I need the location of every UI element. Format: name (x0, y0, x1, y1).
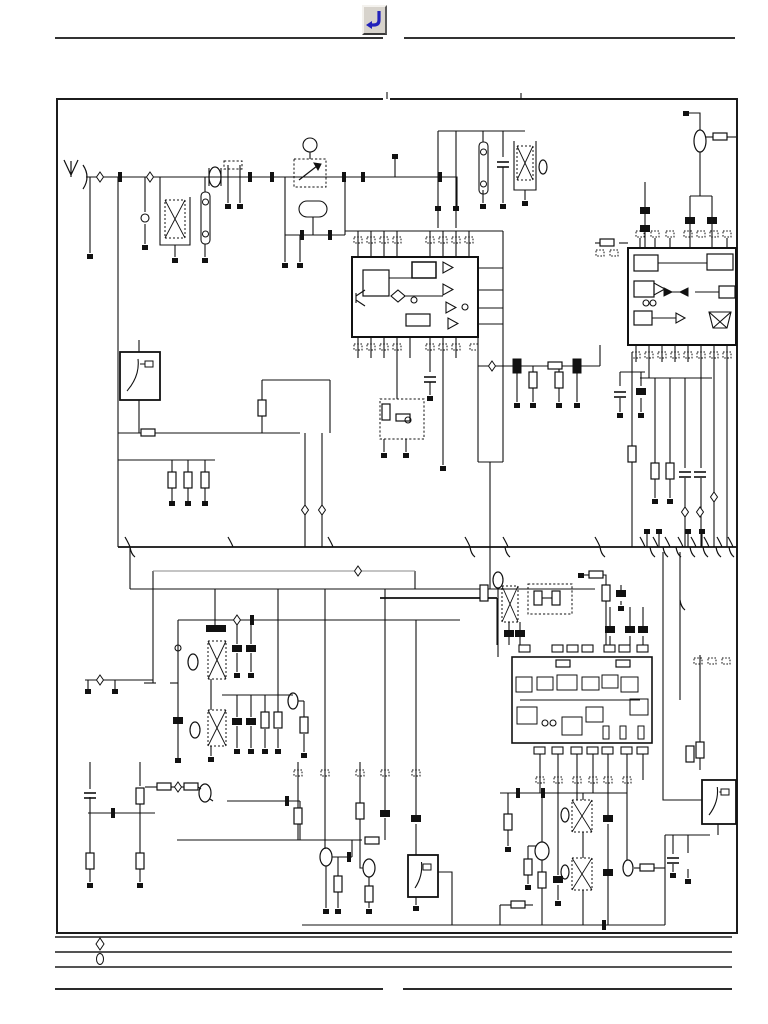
tube-dot (481, 181, 487, 187)
ic-pin-pad (582, 645, 593, 652)
transformer-coil (190, 722, 200, 738)
crossover-hook (465, 537, 470, 547)
capacitor-bold (216, 625, 226, 632)
ground (392, 154, 398, 159)
capacitor-bold (640, 225, 650, 232)
ic-pin-pad (552, 645, 563, 652)
resistor (258, 400, 266, 416)
ic-pin-pad (621, 747, 632, 754)
ic-pin-pad (619, 645, 630, 652)
resistor (334, 876, 342, 892)
circle-symbol (411, 297, 417, 303)
ic-block (363, 270, 389, 296)
jack-box (120, 352, 160, 400)
junction (541, 788, 545, 798)
resistor (696, 742, 704, 758)
ground (403, 453, 409, 458)
junction (342, 172, 346, 182)
footer-diamond-marker (96, 938, 104, 950)
junction (111, 808, 115, 818)
crossover-hook (470, 547, 475, 557)
ground (453, 206, 459, 211)
transformer-coil (561, 865, 569, 879)
resistor-h (600, 239, 614, 246)
resistor (184, 472, 192, 488)
resistor (686, 746, 694, 762)
resistor-h (640, 864, 654, 871)
ground (505, 847, 511, 852)
ground (301, 753, 307, 758)
ic-pin-pad (567, 645, 578, 652)
diamond-marker (697, 507, 704, 517)
ic-block (552, 591, 560, 605)
circle-symbol (303, 138, 317, 152)
transformer-coil (694, 130, 706, 152)
tube-dot (203, 199, 209, 205)
ground (366, 909, 372, 914)
circle-symbol (462, 304, 468, 310)
resistor (356, 803, 364, 819)
capacitor-bold (707, 217, 717, 224)
resistor (261, 712, 269, 728)
capacitor-bold (636, 388, 646, 395)
transformer-coil (623, 860, 633, 876)
amp-triangle (443, 284, 453, 295)
pin-label-mark (697, 231, 705, 237)
ground (172, 258, 178, 263)
ground (514, 403, 520, 408)
resistor (555, 372, 563, 388)
ground (248, 673, 254, 678)
pin-label-mark (666, 231, 674, 237)
ground (435, 206, 441, 211)
ground (208, 757, 214, 762)
capacitor-bold (625, 626, 635, 633)
resistor-h (556, 660, 570, 667)
ground (617, 413, 623, 418)
amp-triangle (676, 313, 685, 323)
resistor (136, 788, 144, 804)
ic-pin-pad (602, 747, 613, 754)
ic-block (634, 255, 658, 271)
diamond-marker (97, 172, 104, 182)
crossover-hook (328, 537, 333, 547)
ground (427, 396, 433, 401)
junction (285, 796, 289, 806)
diamond-marker (711, 492, 718, 502)
ground (142, 245, 148, 250)
resistor-h (616, 660, 630, 667)
ground (685, 529, 691, 534)
diamond-marker (97, 675, 104, 685)
crossover-hook (678, 537, 683, 547)
resistor (504, 814, 512, 830)
ground (440, 466, 446, 471)
pin-label-mark (684, 231, 692, 237)
resistor-h (589, 571, 603, 578)
resistor (86, 853, 94, 869)
dashed-box (224, 161, 242, 169)
ground (644, 529, 650, 534)
capacitor-bold (232, 645, 242, 652)
ic-pin-pad (552, 747, 563, 754)
ground (656, 529, 662, 534)
ic-block (557, 675, 577, 690)
ground (652, 499, 658, 504)
pin-label-mark (596, 250, 604, 256)
resistor (480, 585, 488, 601)
diamond-marker (234, 615, 241, 625)
junction (118, 172, 122, 182)
ic-block (582, 677, 599, 690)
ground (169, 501, 175, 506)
transformer-coil (363, 859, 375, 877)
ic-block (719, 286, 735, 298)
capacitor-bold (515, 630, 525, 637)
resistor-h (365, 837, 379, 844)
ground (525, 885, 531, 890)
ground (202, 501, 208, 506)
capacitor-bold (504, 630, 514, 637)
symbol-path (391, 290, 405, 302)
ic-block (586, 707, 603, 722)
diamond-marker (489, 361, 496, 371)
resistor-h (157, 783, 171, 790)
ground (480, 204, 486, 209)
ground (699, 529, 705, 534)
ground (413, 906, 419, 911)
junction (328, 230, 332, 240)
ground (112, 689, 118, 694)
ground (282, 263, 288, 268)
junction (248, 172, 252, 182)
junction (270, 172, 274, 182)
resistor (300, 717, 308, 733)
resistor (651, 463, 659, 479)
transformer-coil (493, 572, 503, 588)
symbol-path (299, 166, 317, 180)
ground (137, 883, 143, 888)
resistor (365, 886, 373, 902)
ground (685, 879, 691, 884)
circle-symbol (650, 300, 656, 306)
pin-label-mark (651, 231, 659, 237)
ground (202, 258, 208, 263)
crossover-hook (704, 537, 709, 547)
ic-block (406, 314, 430, 326)
junction (347, 852, 351, 862)
diamond-marker (682, 507, 689, 517)
wire (210, 799, 213, 801)
crossover-hook (690, 547, 695, 557)
crossover-hook (691, 537, 696, 547)
capacitor-bold (206, 625, 216, 632)
capacitor-bold (380, 810, 390, 817)
resistor-small (638, 726, 644, 739)
ground (297, 263, 303, 268)
crossover-hook (228, 537, 233, 547)
resistor (382, 404, 390, 420)
circle-symbol (550, 720, 556, 726)
pin-label-mark (610, 250, 618, 256)
capacitor-bold (603, 815, 613, 822)
resistor (529, 372, 537, 388)
diamond-marker (175, 782, 182, 792)
ic-block (634, 281, 654, 297)
resistor-h (548, 362, 562, 369)
resistor (628, 446, 636, 462)
ground (85, 689, 91, 694)
ground (381, 453, 387, 458)
document-page (0, 0, 768, 1024)
resistor-small (603, 726, 609, 739)
ground (683, 111, 689, 116)
ground (638, 413, 644, 418)
jack-box (702, 780, 736, 824)
capacitor-bold (638, 626, 648, 633)
schematic-frame (57, 99, 737, 933)
capacitor-bold (685, 217, 695, 224)
circle-symbol (643, 300, 649, 306)
ic-block (630, 699, 648, 715)
resistor (201, 472, 209, 488)
junction (300, 230, 304, 240)
ground (578, 573, 584, 578)
transformer-coil (561, 808, 569, 822)
resistor-h (511, 901, 525, 908)
pin-label-mark (722, 658, 730, 664)
capacitor-bold (246, 718, 256, 725)
wire (438, 872, 452, 925)
crossover-hook (703, 547, 708, 557)
diamond-marker (147, 172, 154, 182)
diamond-marker (302, 505, 309, 515)
ground (555, 901, 561, 906)
wire (688, 113, 700, 130)
junction (250, 615, 254, 625)
junction (602, 920, 606, 930)
transformer-coil (199, 784, 211, 802)
resistor (168, 472, 176, 488)
footer-oval-marker (97, 954, 104, 965)
transformer-coil (320, 848, 332, 866)
ic-block (602, 675, 618, 688)
ground (556, 403, 562, 408)
tube-component (201, 192, 210, 244)
resistor (524, 859, 532, 875)
symbol-path (64, 160, 87, 189)
ic-block (707, 254, 733, 270)
ground (225, 204, 231, 209)
resistor (602, 585, 610, 601)
ic-block (537, 677, 553, 690)
pin-label-mark (470, 344, 478, 350)
transformer-coil (188, 654, 198, 670)
crossover-hook (653, 537, 658, 547)
jack-box (408, 855, 438, 897)
ground (234, 673, 240, 678)
ground (670, 873, 676, 878)
crossover-hook (717, 537, 722, 547)
capacitor-bold (553, 876, 563, 883)
crossover-hook (600, 547, 605, 557)
schematic-canvas (0, 0, 768, 1024)
ground (248, 749, 254, 754)
capacitor-bold (232, 718, 242, 725)
ground (667, 499, 673, 504)
ic-pin-pad (637, 645, 648, 652)
crossover-hook (503, 537, 508, 547)
resistor (294, 808, 302, 824)
ground (185, 501, 191, 506)
ic-block (534, 591, 542, 605)
symbol-path (709, 312, 731, 328)
capacitor-bold (616, 590, 626, 597)
ground (323, 909, 329, 914)
crossover-hook (640, 537, 645, 547)
resistor (274, 712, 282, 728)
crossover-hook (650, 547, 655, 557)
transformer-coil (535, 842, 549, 860)
capacitor-bold (411, 815, 421, 822)
ground (234, 749, 240, 754)
symbol-path (680, 288, 688, 296)
ground (262, 749, 268, 754)
ground (574, 403, 580, 408)
pin-label-mark (710, 231, 718, 237)
junction (516, 788, 520, 798)
junction (438, 172, 442, 182)
pin-label-mark (694, 658, 702, 664)
ground (175, 758, 181, 763)
crossover-hook (680, 600, 685, 610)
crossover-hook (595, 537, 600, 547)
diamond-marker (319, 505, 326, 515)
capacitor-bold (603, 869, 613, 876)
wire (360, 819, 363, 868)
ic-block (412, 262, 436, 278)
ground (618, 606, 624, 611)
circle-symbol (542, 720, 548, 726)
circle-symbol (141, 214, 149, 222)
symbol-path (664, 288, 672, 296)
tube-dot (481, 149, 487, 155)
capacitor-bold (640, 207, 650, 214)
header-rule (404, 37, 735, 39)
ground (335, 909, 341, 914)
tube-dot (203, 231, 209, 237)
resistor (666, 463, 674, 479)
dashed-box (294, 159, 326, 187)
capacitor-bold (605, 626, 615, 633)
ic-block (517, 707, 537, 724)
transformer-coil (539, 160, 547, 174)
amp-triangle (446, 302, 456, 313)
ic-block (634, 311, 652, 325)
ground (237, 204, 243, 209)
crossover-hook (125, 537, 130, 547)
capacitor-bold (246, 645, 256, 652)
ic-pin-pad (604, 645, 615, 652)
resistor (538, 872, 546, 888)
pin-label-mark (708, 658, 716, 664)
capacitor-bold (173, 717, 183, 724)
ic-block (516, 677, 532, 692)
ground (275, 749, 281, 754)
ic-pin-pad (571, 747, 582, 754)
amp-triangle (443, 262, 453, 273)
resistor-bold (513, 359, 521, 373)
ic-block (621, 677, 638, 692)
wire (663, 718, 702, 800)
varicap-box (299, 201, 327, 217)
crossover-hook (729, 547, 734, 557)
crossover-hook (505, 547, 510, 557)
ic-pin-pad (637, 747, 648, 754)
ground (87, 254, 93, 259)
crossover-hook (665, 537, 670, 547)
ic-pin-pad (587, 747, 598, 754)
tube-component (479, 142, 488, 194)
amp-triangle (448, 318, 458, 329)
ground (530, 403, 536, 408)
resistor-h (141, 429, 155, 436)
crossover-hook (130, 547, 135, 557)
resistor (136, 853, 144, 869)
ground (87, 883, 93, 888)
symbol-path (314, 163, 321, 170)
ic-pin-pad (534, 747, 545, 754)
diamond-marker (355, 566, 362, 576)
crossover-hook (728, 537, 733, 547)
ic-block (562, 717, 582, 735)
resistor-h (184, 783, 198, 790)
header-rule (55, 37, 383, 39)
crossover-hook (663, 547, 668, 557)
resistor-bold (573, 359, 581, 373)
resistor-small (620, 726, 626, 739)
junction (361, 172, 365, 182)
pin-label-mark (723, 231, 731, 237)
ground (500, 204, 506, 209)
ground (522, 201, 528, 206)
crossover-hook (716, 547, 721, 557)
resistor-h (713, 133, 727, 140)
amp-triangle (654, 283, 665, 295)
ic-pin-pad (519, 645, 530, 652)
symbol-path (356, 290, 365, 306)
